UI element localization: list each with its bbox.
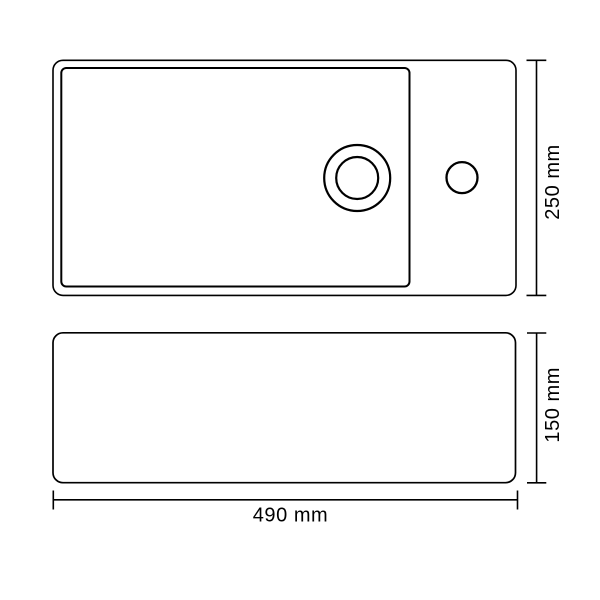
svg-text:490 mm: 490 mm (253, 504, 329, 526)
svg-text:150 mm: 150 mm (542, 367, 564, 443)
svg-text:250 mm: 250 mm (542, 144, 564, 220)
